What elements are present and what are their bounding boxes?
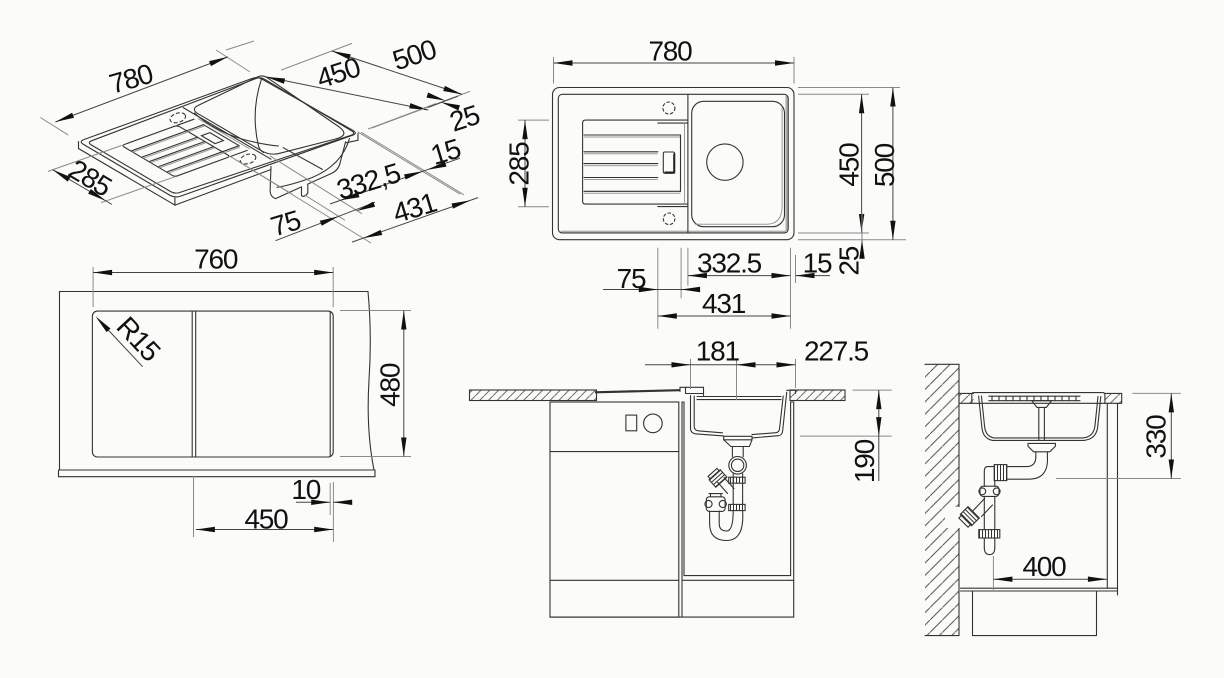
svg-text:760: 760	[194, 244, 238, 275]
svg-text:450: 450	[244, 504, 288, 535]
svg-text:75: 75	[617, 263, 646, 294]
svg-text:330: 330	[1141, 415, 1172, 459]
svg-text:25: 25	[834, 246, 865, 275]
svg-text:10: 10	[291, 474, 320, 505]
svg-text:15: 15	[803, 248, 832, 279]
svg-text:400: 400	[1022, 551, 1066, 582]
svg-text:780: 780	[648, 36, 692, 67]
svg-text:190: 190	[849, 439, 880, 483]
svg-text:285: 285	[504, 142, 535, 186]
svg-text:480: 480	[375, 363, 406, 407]
svg-text:227.5: 227.5	[804, 336, 869, 367]
svg-text:332.5: 332.5	[697, 248, 762, 279]
svg-text:450: 450	[834, 143, 865, 187]
svg-text:500: 500	[869, 143, 900, 187]
svg-text:181: 181	[696, 336, 740, 367]
svg-text:431: 431	[702, 288, 746, 319]
